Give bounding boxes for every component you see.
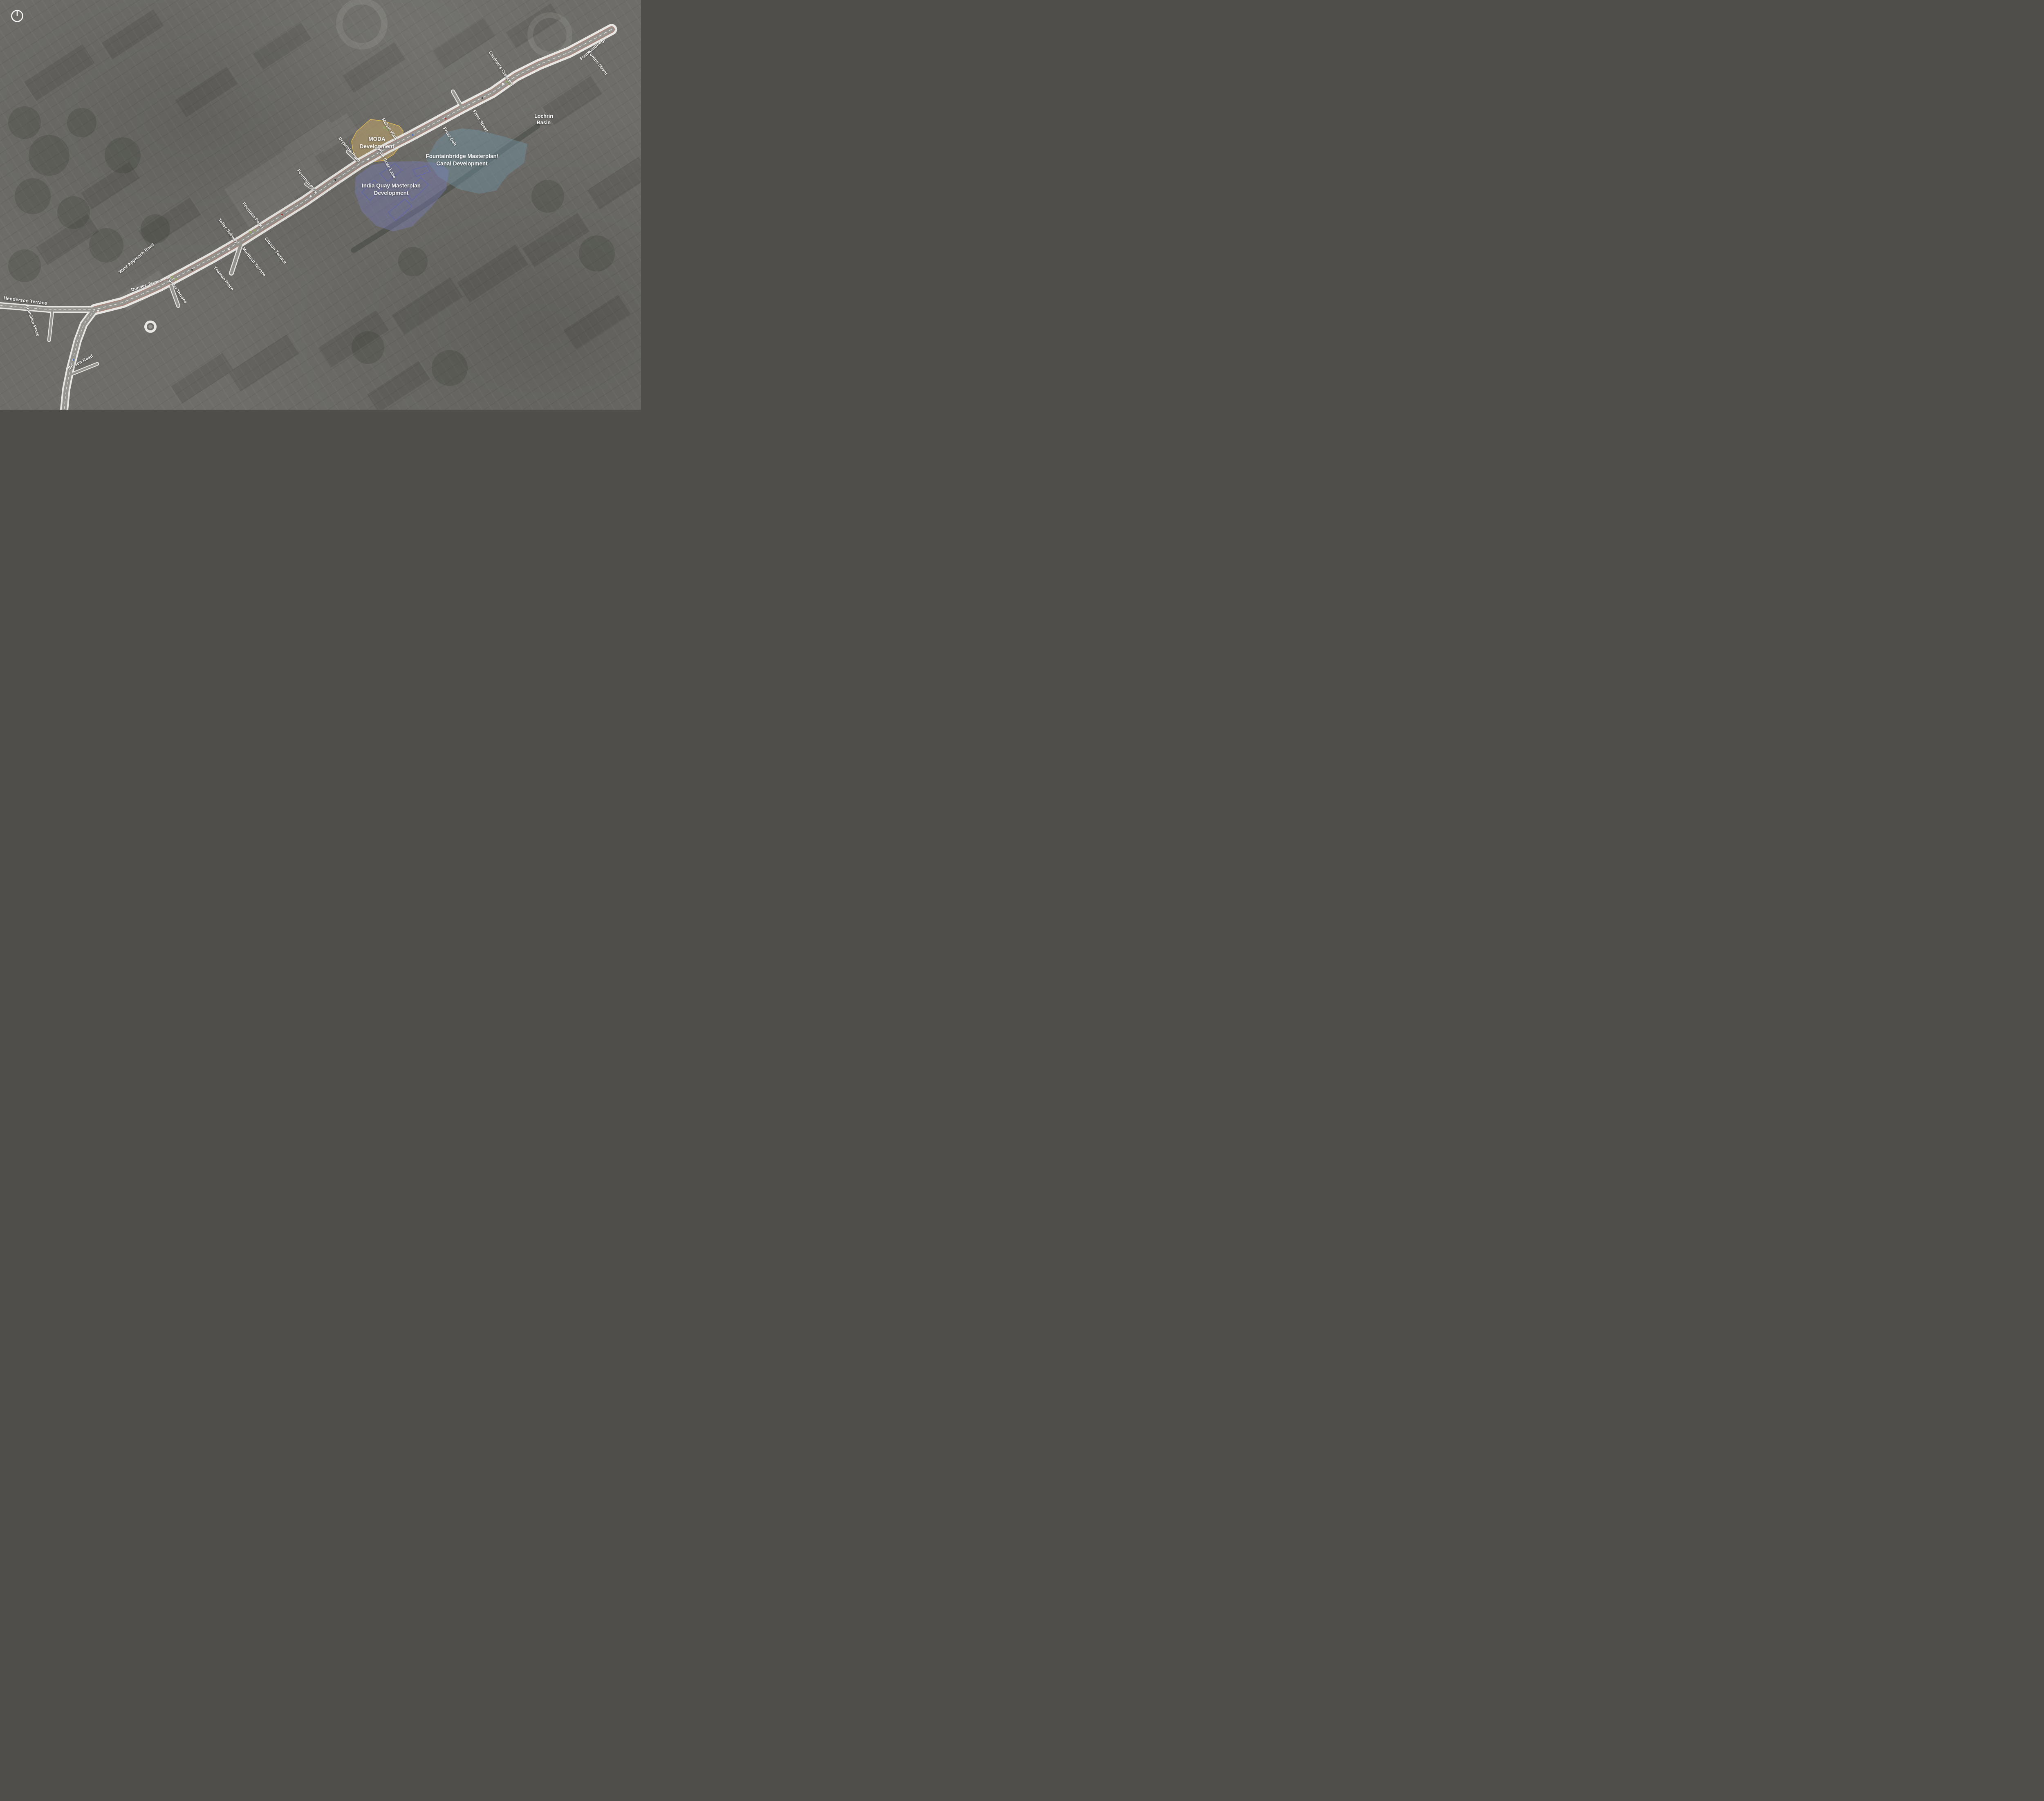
- india-quay-area: [355, 161, 449, 231]
- north-indicator-icon: [10, 8, 25, 23]
- development-areas: [352, 119, 527, 231]
- roundabout: [146, 322, 155, 332]
- map-canvas: [0, 0, 641, 410]
- road-corridor: [0, 29, 612, 410]
- aerial-map[interactable]: MODA Development Fountainbridge Masterpl…: [0, 0, 641, 410]
